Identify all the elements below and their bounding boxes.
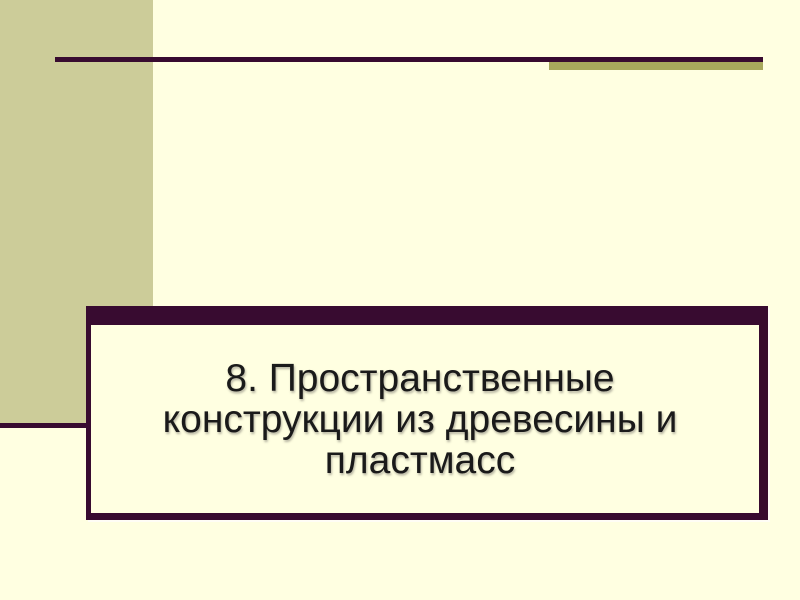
left-band-underline xyxy=(0,423,88,428)
slide-title-line-3: пластмасс xyxy=(325,440,515,481)
slide: 8. Пространственные конструкции из древе… xyxy=(0,0,800,600)
slide-title-line-2: конструкции из древесины и xyxy=(163,399,678,440)
top-accent-bar xyxy=(549,62,763,70)
slide-title: 8. Пространственные конструкции из древе… xyxy=(91,325,759,513)
title-box-top-bar xyxy=(91,306,759,325)
slide-title-line-1: 8. Пространственные xyxy=(225,358,614,399)
title-box: 8. Пространственные конструкции из древе… xyxy=(86,306,768,520)
